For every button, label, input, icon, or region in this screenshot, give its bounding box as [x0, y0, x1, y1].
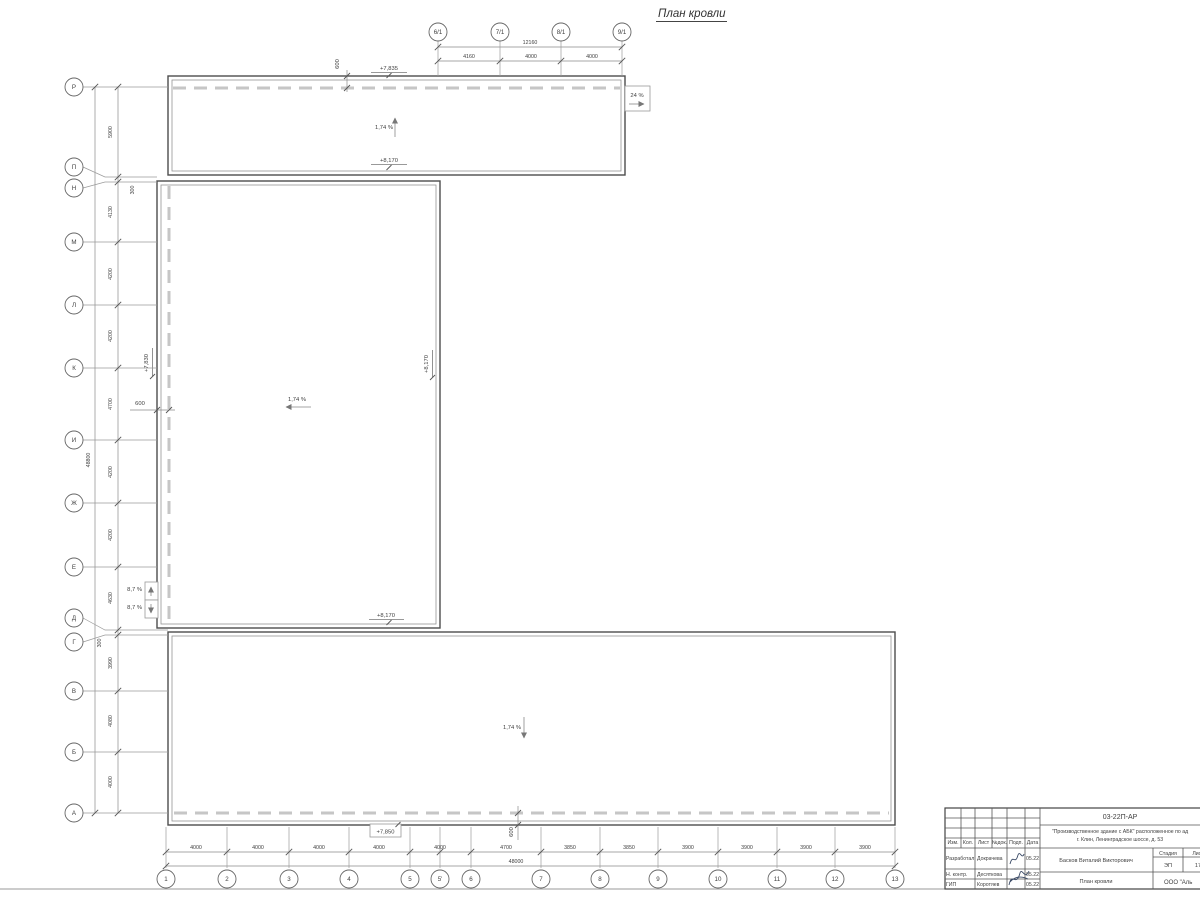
dim-label-left: 4000 — [108, 776, 114, 788]
axis-label: 11 — [774, 876, 781, 883]
axis-label: 10 — [715, 876, 722, 883]
offset-bottom-label: 600 — [509, 827, 515, 837]
dim-label-bottom: 3850 — [564, 845, 576, 851]
elev-mid-right: +8,170 — [424, 355, 430, 373]
axis-label: 7 — [539, 876, 543, 883]
axis-label: Б — [72, 749, 76, 756]
axis-label: 13 — [892, 876, 899, 883]
dim-label-top: 4160 — [463, 54, 475, 60]
row-role: Н. контр. — [946, 872, 967, 878]
middle-roof-outline — [157, 181, 440, 628]
slope-side-top-label: 8,7 % — [127, 587, 142, 593]
axis-label: Е — [72, 564, 76, 571]
roof-plan-drawing: 24 % 8,7 % 8,7 % +7,835 +8,170 +7,830 +8… — [0, 0, 1200, 900]
elev-bottom: +7,850 — [377, 830, 395, 836]
middle-roof-inner — [161, 185, 436, 624]
dim-label-left: 4630 — [108, 592, 114, 604]
side-slope-box-bottom — [145, 600, 158, 618]
axis-label: 7/1 — [496, 29, 505, 36]
dim-label-left: 5900 — [108, 126, 114, 138]
col-podp: Подп. — [1009, 840, 1023, 846]
sheet-number: 17 — [1195, 863, 1200, 869]
dim-label-left: 300 — [130, 186, 136, 195]
dim-label-left: 4130 — [108, 206, 114, 218]
dim-label-left: 4200 — [108, 268, 114, 280]
dim-label-bottom: 4000 — [434, 845, 446, 851]
doc-code: 03-22П-АР — [1103, 814, 1138, 821]
row-date: 05.22 — [1026, 882, 1039, 888]
dim-label-left: 4200 — [108, 330, 114, 342]
row-role: Разработал — [946, 856, 974, 862]
row-role: ГИП — [946, 882, 957, 888]
axis-label: 12 — [832, 876, 839, 883]
dim-total-left: 48800 — [86, 453, 92, 468]
stage-value: ЭП — [1164, 863, 1172, 869]
dim-label-bottom: 4000 — [313, 845, 325, 851]
axis-label: 1 — [164, 876, 168, 883]
slope-mid-label: 1,74 % — [288, 397, 306, 403]
axis-label: В — [72, 688, 76, 695]
dim-total-bottom: 48000 — [509, 859, 524, 865]
dim-label-bottom: 4000 — [252, 845, 264, 851]
col-data: Дата — [1027, 840, 1039, 846]
dim-label-bottom: 3900 — [682, 845, 694, 851]
slope-bottom-label: 1,74 % — [503, 725, 521, 731]
dim-label-left: 4700 — [108, 398, 114, 410]
axis-label: И — [72, 437, 76, 444]
axis-label: К — [72, 365, 76, 372]
axis-label: М — [71, 239, 76, 246]
row-name: Докрачева — [977, 856, 1003, 862]
elev-tick — [387, 165, 392, 170]
col-kol: Кол. — [963, 840, 973, 846]
dim-label-left: 4080 — [108, 715, 114, 727]
axis-label: Ж — [71, 500, 77, 507]
axis-label: 9 — [656, 876, 660, 883]
title-block: 03-22П-АР "Производственное здание с АБК… — [945, 808, 1200, 889]
signature — [1010, 854, 1024, 864]
dim-label-left: 300 — [97, 639, 103, 648]
dim-label-left: 4200 — [108, 529, 114, 541]
col-list: Лист — [978, 840, 990, 846]
chief-name: Басков Виталий Викторович — [1059, 857, 1133, 864]
dim-label-bottom: 3900 — [800, 845, 812, 851]
offset-mid-label: 600 — [135, 401, 145, 407]
axis-label: 2 — [225, 876, 229, 883]
elev-top-eave: +8,170 — [380, 158, 398, 164]
axis-label: Н — [72, 185, 76, 192]
project-line1: "Производственное здание с АБК" располож… — [1052, 829, 1188, 835]
axis-line — [83, 182, 157, 188]
company-name: ООО "Аль — [1164, 880, 1192, 886]
slope-ramp-label: 24 % — [630, 93, 643, 99]
dim-label-bottom: 4000 — [190, 845, 202, 851]
axis-label: 9/1 — [618, 29, 627, 36]
slope-side-bottom-label: 8,7 % — [127, 605, 142, 611]
elev-mid-bottom: +8,170 — [377, 613, 395, 619]
bottom-roof-outline — [168, 632, 895, 825]
drawing-title: План кровли — [1080, 879, 1113, 885]
axis-label: 4 — [347, 876, 351, 883]
col-izm: Изм. — [947, 840, 958, 846]
axis-label: Р — [72, 84, 76, 91]
offset-top-label: 600 — [335, 59, 341, 69]
side-slope-box-top — [145, 582, 158, 600]
axis-line — [83, 635, 168, 642]
dim-label-top: 4000 — [525, 54, 537, 60]
axis-label: 5 — [408, 876, 412, 883]
axis-line — [83, 618, 168, 630]
stage-label: Стадия — [1159, 851, 1177, 857]
dim-label-bottom: 3900 — [859, 845, 871, 851]
axis-label: П — [72, 164, 76, 171]
axis-label: 3 — [287, 876, 291, 883]
elev-top-parapet: +7,835 — [380, 66, 398, 72]
dim-total-top: 12160 — [523, 40, 538, 46]
axis-label: 5' — [438, 876, 443, 883]
dim-label-bottom: 3900 — [741, 845, 753, 851]
col-ndok: №док. — [992, 840, 1007, 846]
dim-label-left: 3990 — [108, 657, 114, 669]
elev-mid-left: +7,830 — [144, 354, 150, 372]
axis-label: 6 — [469, 876, 473, 883]
dim-label-bottom: 4000 — [373, 845, 385, 851]
slope-top-label: 1,74 % — [375, 125, 393, 131]
axis-label: Л — [72, 302, 76, 309]
axis-label: 6/1 — [434, 29, 443, 36]
dim-label-left: 4200 — [108, 466, 114, 478]
row-name: Десяткова — [977, 872, 1002, 878]
axis-label: 8 — [598, 876, 602, 883]
row-date: 05.22 — [1026, 856, 1039, 862]
dim-label-bottom: 4700 — [500, 845, 512, 851]
axis-label: 8/1 — [557, 29, 566, 36]
row-name: Коротяев — [977, 882, 1000, 888]
dim-label-top: 4000 — [586, 54, 598, 60]
sheet-label: Лист — [1192, 851, 1200, 857]
drawing-sheet: План кровли 24 % 8,7 % 8,7 % +7,835 — [0, 0, 1200, 900]
dim-label-bottom: 3850 — [623, 845, 635, 851]
project-line2: г. Клин, Ленинградское шоссе, д. 53 — [1077, 837, 1163, 843]
bottom-roof-inner — [172, 636, 891, 821]
